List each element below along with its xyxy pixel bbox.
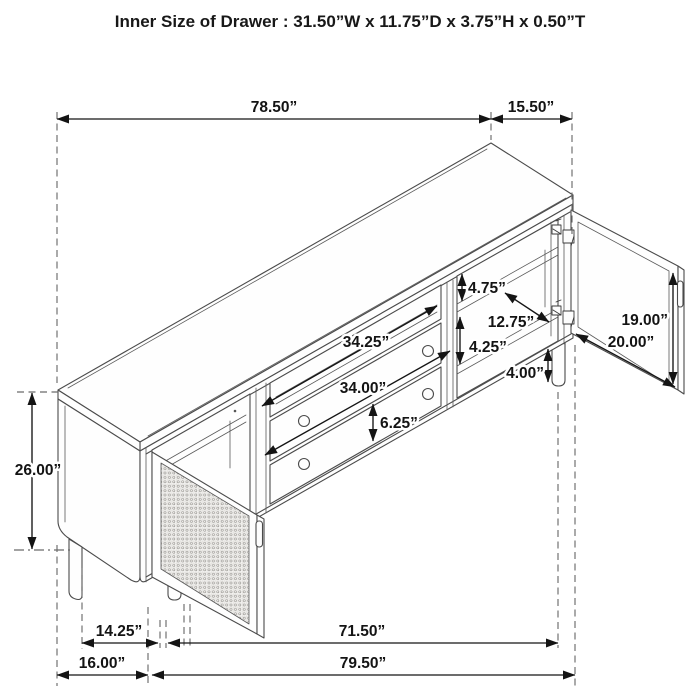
drawer-lower-knob-right [423,389,434,400]
cabinet-body [58,143,573,600]
dim-label-left-bottom-depth: 16.00” [79,655,126,672]
dim-label-door-width: 20.00” [608,334,655,351]
dim-label-opening-mid-height: 4.25” [469,339,507,356]
dim-label-leg-height: 4.00” [506,365,544,382]
dim-left-bottom-depth: 16.00” [57,655,148,675]
dim-label-bottom-right-span: 71.50” [339,623,386,640]
dim-total-height: 26.00” [15,393,62,549]
dim-label-inner-depth: 12.75” [488,314,535,331]
dim-label-drawer-face-height: 6.25” [380,415,418,432]
diagram-canvas: 78.50” 15.50” 4.75” 12.75” 4.25” 4.00” 1… [0,0,700,700]
dim-top-length: 78.50” [57,99,491,119]
dim-label-door-height: 19.00” [621,312,668,329]
dim-left-section-width: 14.25” [82,623,158,643]
dim-bottom-span: 79.50” [152,655,575,675]
glass-door-open [552,210,684,394]
furniture-dimension-diagram: 78.50” 15.50” 4.75” 12.75” 4.25” 4.00” 1… [0,0,700,700]
dim-top-side: 15.50” [491,99,572,119]
page-title: Inner Size of Drawer : 31.50”W x 11.75”D… [115,12,586,31]
dim-label-drawer-width: 34.00” [340,380,387,397]
mesh-door-handle [256,521,263,547]
dim-label-total-height: 26.00” [15,462,62,479]
glass-door-handle [678,281,684,307]
interior-dot [234,410,237,413]
dim-label-opening-top-height: 4.75” [468,280,506,297]
drawer-upper-knob-right [423,346,434,357]
dim-label-bottom-span: 79.50” [340,655,387,672]
drawer-upper-knob-left [299,416,310,427]
dim-label-shelf-opening-width: 34.25” [343,334,390,351]
dim-label-left-section-width: 14.25” [96,623,143,640]
glass-door-frame [571,210,678,390]
leg-back-left [69,539,82,600]
dim-label-top-length: 78.50” [251,99,298,116]
drawer-lower-knob-left [299,459,310,470]
dim-label-top-side: 15.50” [508,99,555,116]
dim-bottom-right-span: 71.50” [168,623,558,643]
